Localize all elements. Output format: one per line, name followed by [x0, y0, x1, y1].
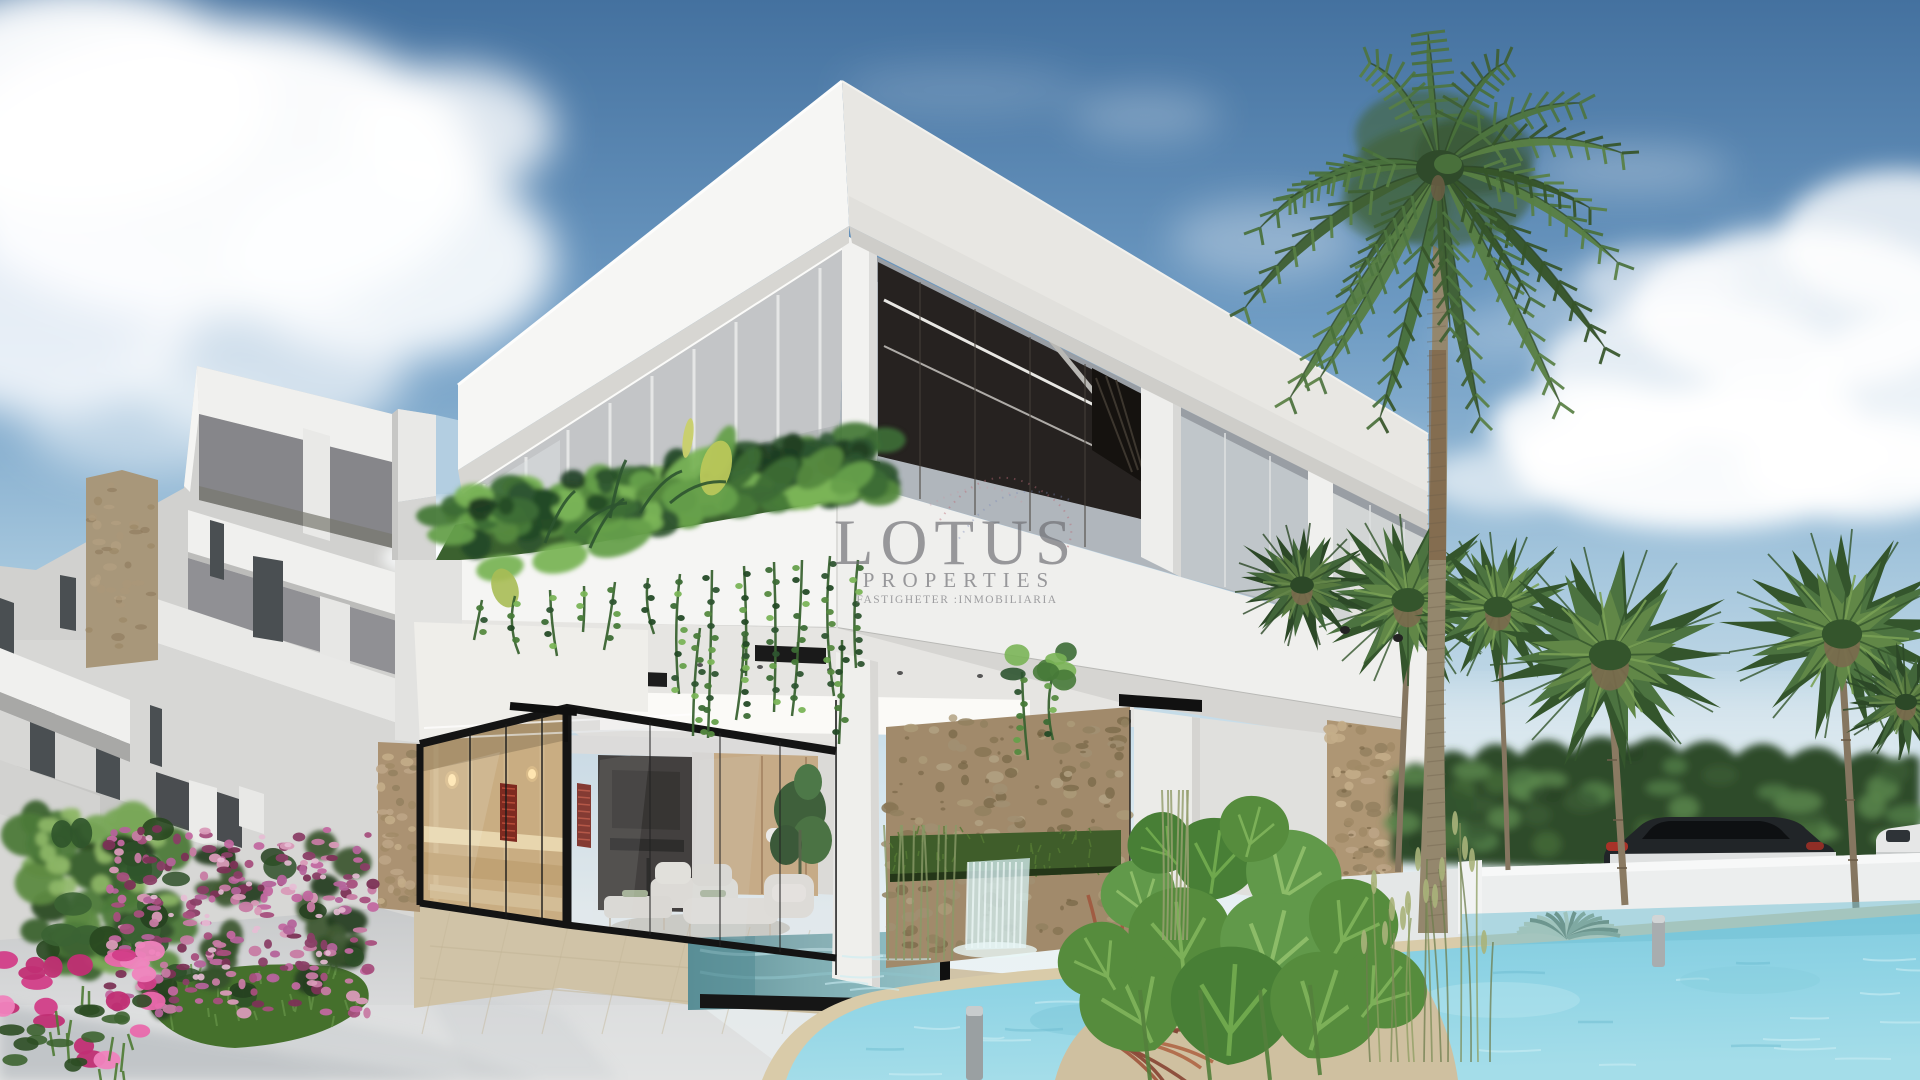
- svg-text:PROPERTIES: PROPERTIES: [863, 568, 1055, 592]
- svg-text:FASTIGHETER :INMOBILIARIA: FASTIGHETER :INMOBILIARIA: [856, 594, 1057, 606]
